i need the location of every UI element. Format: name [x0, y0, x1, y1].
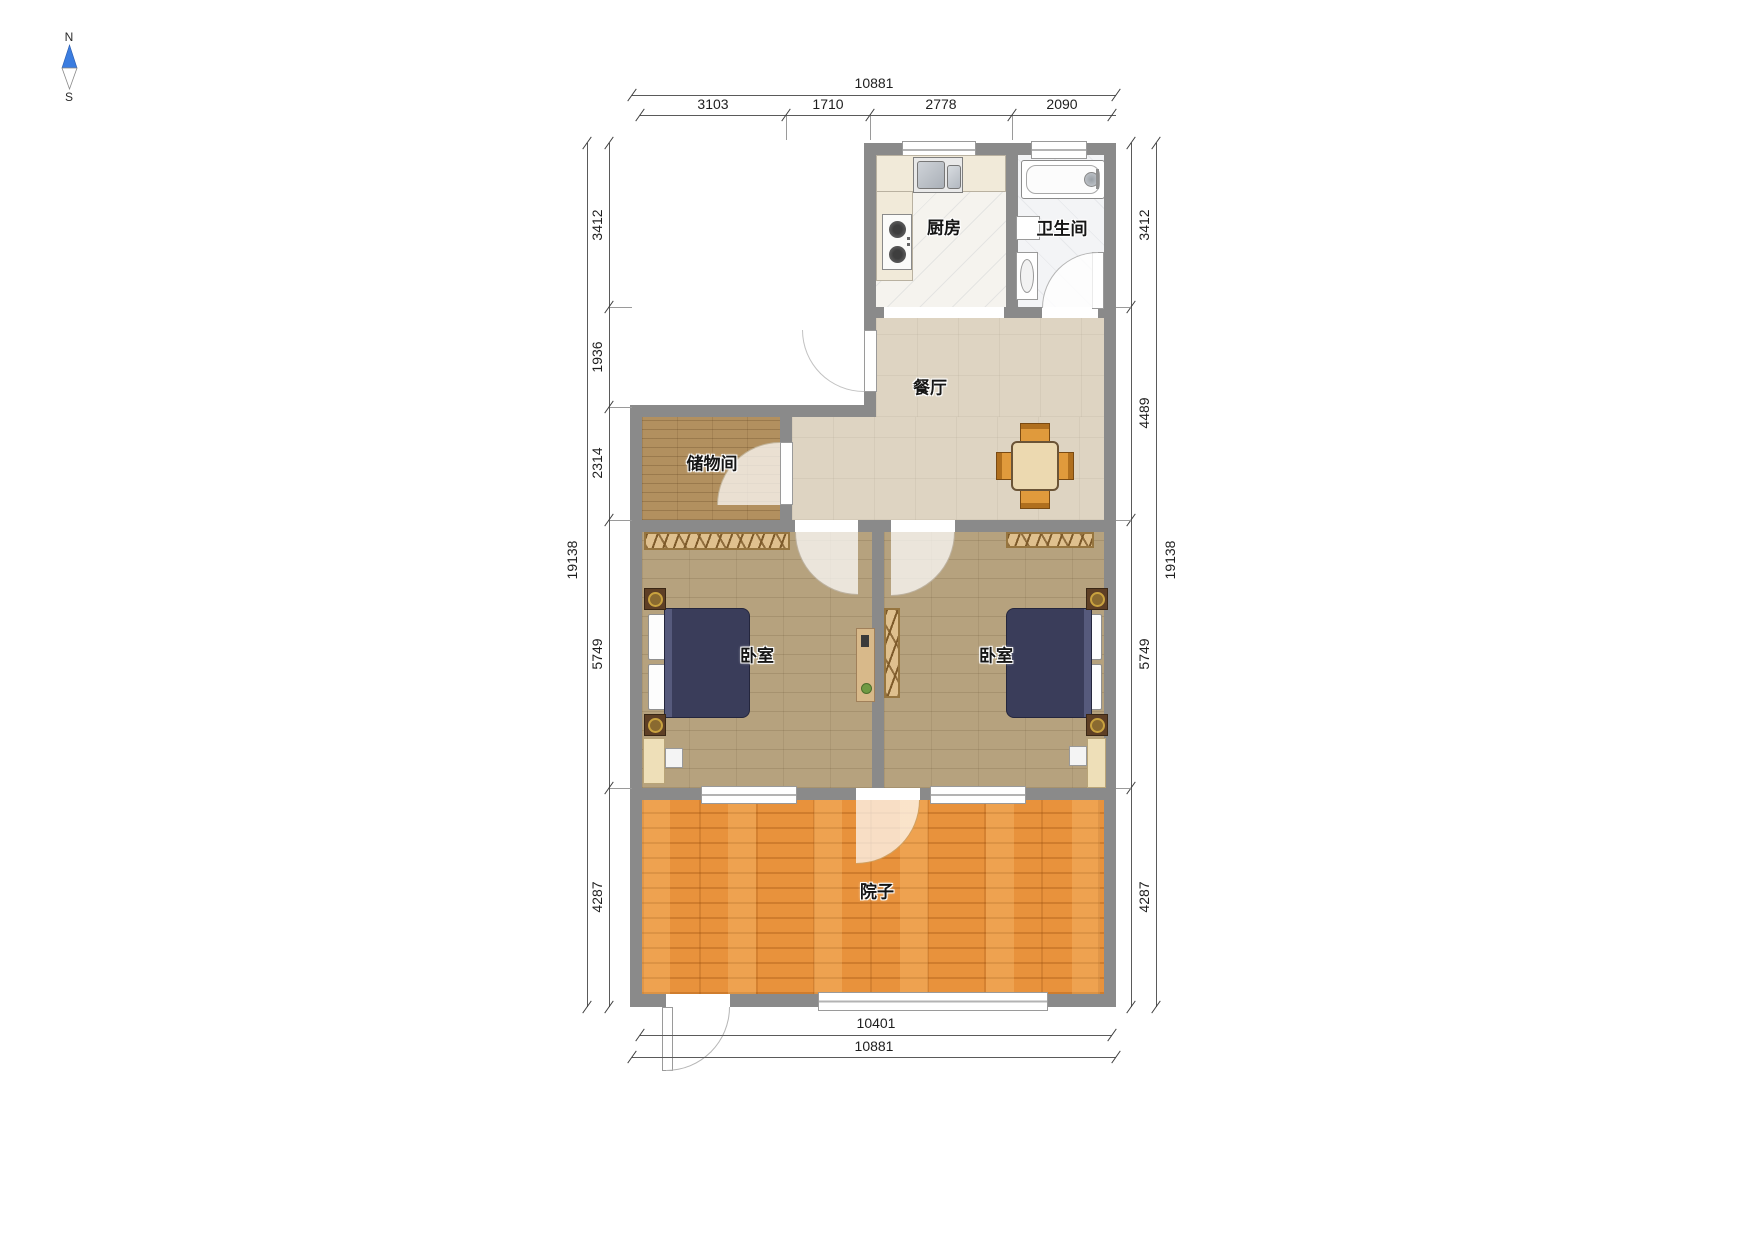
- dim-top-seg1: 3103: [697, 96, 728, 112]
- kitchen-sink: [913, 157, 963, 193]
- wall-bedrooms-top: [630, 520, 1116, 532]
- bathroom-label: 卫生间: [1037, 215, 1088, 240]
- nightstand: [1086, 714, 1108, 736]
- dim-extension: [1116, 307, 1131, 308]
- compass-needle-icon: [61, 44, 78, 90]
- dim-right-seg4: 4287: [1136, 881, 1152, 912]
- compass-north-label: N: [65, 30, 74, 44]
- dim-right-seg3: 5749: [1136, 638, 1152, 669]
- nightstand-knob-icon: [648, 592, 663, 607]
- entrance-door-leaf: [864, 330, 877, 392]
- bedroom-left-window: [701, 786, 797, 804]
- dining-label: 餐厅: [913, 374, 947, 399]
- dim-extension: [1116, 788, 1131, 789]
- stove-knob: [907, 243, 910, 246]
- dim-extension: [610, 407, 632, 408]
- bedroom-left-wardrobe: [644, 532, 790, 550]
- gate-swing: [666, 1007, 730, 1071]
- dim-left-seg2: 1936: [589, 341, 605, 372]
- bathroom-vanity: [1016, 252, 1038, 300]
- compass: N S: [52, 30, 86, 104]
- dim-line-bottom-total: [632, 1057, 1116, 1058]
- sink-basin-left: [917, 161, 945, 189]
- dim-top-seg3: 2778: [925, 96, 956, 112]
- wall-storage-top: [630, 405, 876, 417]
- bedroom-right-wardrobe: [1006, 532, 1094, 548]
- dim-left-seg3: 2314: [589, 447, 605, 478]
- dim-right-seg1: 3412: [1136, 209, 1152, 240]
- plant-icon: [861, 683, 872, 694]
- sink-basin-right: [947, 165, 961, 189]
- nightstand-knob-icon: [1090, 592, 1105, 607]
- nightstand-knob-icon: [1090, 718, 1105, 733]
- dim-extension: [610, 788, 632, 789]
- dining-chair-bottom: [1020, 489, 1050, 509]
- stove-knob: [907, 237, 910, 240]
- dim-left-seg4: 5749: [589, 638, 605, 669]
- dim-line-left-total: [587, 143, 588, 1007]
- dim-right-seg2: 4489: [1136, 397, 1152, 428]
- dim-line-right-segments: [1131, 143, 1132, 1007]
- storage-door-leaf: [780, 442, 793, 505]
- bedroom-left-door-opening: [795, 520, 858, 532]
- kitchen-label: 厨房: [927, 214, 961, 239]
- bed-left-blanket: [664, 608, 750, 718]
- bedroom-left-label: 卧室: [740, 642, 774, 667]
- bedroom-right-cabinet: [1087, 738, 1106, 788]
- bedroom-left-cabinet: [643, 738, 665, 784]
- nightstand: [1086, 588, 1108, 610]
- dining-chair-top: [1020, 423, 1050, 443]
- bedroom-right-label: 卧室: [979, 642, 1013, 667]
- kitchen-passage-opening: [884, 307, 1004, 318]
- dim-extension: [1012, 116, 1013, 140]
- dim-extension: [870, 116, 871, 140]
- console-item: [861, 635, 869, 647]
- bedroom-right-door-opening: [891, 520, 955, 532]
- floor-plan: N S: [0, 0, 1754, 1240]
- entrance-door-swing: [802, 330, 864, 392]
- stove-burner: [889, 246, 906, 263]
- compass-south-label: S: [65, 90, 73, 104]
- courtyard-window: [818, 992, 1048, 1011]
- dim-right-total: 19138: [1162, 541, 1178, 580]
- dim-line-top-segments: [640, 115, 1116, 116]
- kitchen-stove: [882, 214, 912, 270]
- bedroom-left-console: [856, 628, 875, 702]
- courtyard-label: 院子: [860, 878, 894, 903]
- bathroom-window: [1031, 141, 1087, 159]
- bedroom-left-stool: [665, 748, 683, 768]
- courtyard-door-opening: [856, 788, 920, 800]
- stove-burner: [889, 221, 906, 238]
- dining-table: [1011, 441, 1059, 491]
- dining-floor-upper: [876, 318, 1104, 417]
- dim-left-total: 19138: [564, 541, 580, 580]
- vanity-basin: [1020, 259, 1034, 293]
- dim-extension: [786, 116, 787, 140]
- dim-extension: [1116, 520, 1131, 521]
- nightstand: [644, 588, 666, 610]
- dim-left-seg5: 4287: [589, 881, 605, 912]
- gate-opening: [666, 994, 730, 1007]
- bedroom-right-window: [930, 786, 1026, 804]
- dim-extension: [610, 307, 632, 308]
- dim-line-left-segments: [609, 143, 610, 1007]
- bathroom-door-opening: [1042, 307, 1098, 318]
- dim-bottom-total: 10881: [855, 1038, 894, 1054]
- nightstand: [644, 714, 666, 736]
- wall-left: [630, 405, 642, 1007]
- storage-label: 储物间: [687, 450, 738, 475]
- dim-top-seg4: 2090: [1046, 96, 1077, 112]
- dim-line-right-total: [1156, 143, 1157, 1007]
- bathtub-faucet-bar: [1096, 169, 1099, 189]
- nightstand-knob-icon: [648, 718, 663, 733]
- bathtub: [1021, 160, 1105, 199]
- dim-top-seg2: 1710: [812, 96, 843, 112]
- dim-bottom-inner: 10401: [857, 1015, 896, 1031]
- bed-right-blanket: [1006, 608, 1092, 718]
- bedroom-right-stool: [1069, 746, 1087, 766]
- dim-top-total: 10881: [855, 75, 894, 91]
- dim-left-seg1: 3412: [589, 209, 605, 240]
- dim-line-bottom-inner: [640, 1035, 1112, 1036]
- wall-right: [1104, 143, 1116, 1007]
- dim-extension: [610, 520, 632, 521]
- bedroom-right-side-wardrobe: [884, 608, 900, 698]
